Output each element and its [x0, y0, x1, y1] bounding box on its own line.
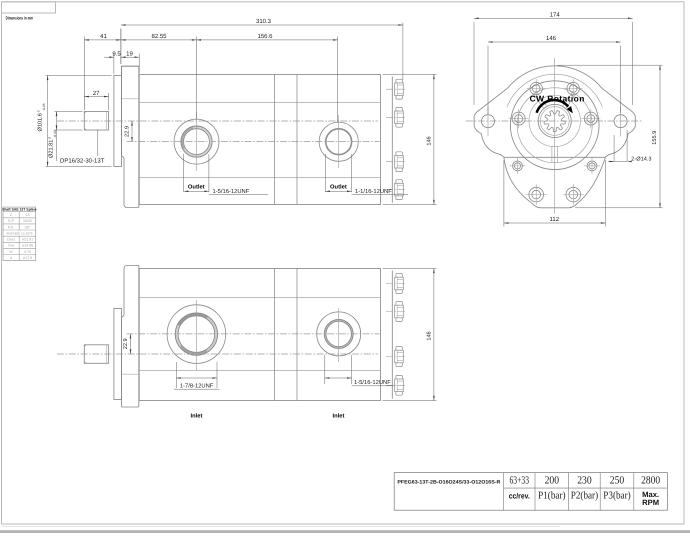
svg-text:1-5/16-12UNF: 1-5/16-12UNF [213, 188, 250, 195]
svg-text:41: 41 [100, 33, 107, 40]
svg-text:310.3: 310.3 [256, 18, 272, 25]
svg-text:9.5: 9.5 [112, 50, 121, 57]
svg-text:CW Rotation: CW Rotation [530, 93, 585, 103]
svg-text:1-5/16-12UNF: 1-5/16-12UNF [354, 379, 391, 386]
svg-text:146: 146 [427, 331, 433, 340]
svg-text:82.55: 82.55 [151, 33, 167, 40]
svg-text:174: 174 [550, 11, 561, 18]
svg-text:Ø21.81 0: Ø21.81 0 [48, 137, 55, 158]
svg-text:22.9: 22.9 [123, 338, 129, 349]
svg-text:Outlet: Outlet [188, 184, 205, 191]
svg-text:2800: 2800 [641, 475, 660, 487]
svg-text:Dia: Dia [8, 244, 13, 248]
svg-text:Dext: Dext [7, 238, 14, 242]
svg-text:-0.13: -0.13 [53, 130, 57, 137]
svg-text:ø21.91: ø21.91 [22, 238, 33, 242]
svg-text:112: 112 [550, 216, 560, 223]
svg-text:155.9: 155.9 [652, 131, 658, 145]
svg-text:27: 27 [93, 90, 100, 97]
svg-text:230: 230 [577, 475, 592, 487]
svg-text:200: 200 [545, 475, 560, 487]
svg-text:-0.05: -0.05 [42, 103, 46, 110]
svg-text:Shaft SAE 13T Spline: Shaft SAE 13T Spline [2, 208, 36, 212]
svg-text:W: W [9, 250, 13, 254]
svg-text:P2(bar): P2(bar) [571, 491, 599, 502]
svg-text:ø19.45: ø19.45 [22, 244, 33, 248]
svg-text:1-7/8-12UNF: 1-7/8-12UNF [180, 382, 214, 389]
svg-text:63+33: 63+33 [510, 475, 530, 487]
svg-text:ø17.9: ø17.9 [23, 256, 32, 260]
svg-text:Ø101.6 0: Ø101.6 0 [37, 110, 44, 131]
svg-text:146: 146 [427, 136, 433, 145]
svg-text:P.A.: P.A. [8, 225, 14, 229]
svg-text:4.76: 4.76 [24, 250, 31, 254]
svg-text:P1(bar): P1(bar) [538, 491, 566, 502]
svg-text:250: 250 [610, 475, 625, 487]
svg-text:ANSI B92.1a 1976: ANSI B92.1a 1976 [6, 231, 33, 235]
svg-text:22.9: 22.9 [124, 126, 130, 137]
svg-text:2-Ø14.3: 2-Ø14.3 [631, 157, 651, 163]
svg-text:D.P: D.P [8, 219, 15, 223]
svg-text:146: 146 [546, 35, 557, 42]
svg-text:30°: 30° [25, 225, 31, 229]
svg-text:13: 13 [26, 213, 30, 217]
svg-text:156.6: 156.6 [257, 33, 273, 40]
svg-text:1-1/16-12UNF: 1-1/16-12UNF [355, 188, 392, 195]
svg-text:19: 19 [126, 50, 133, 57]
svg-text:Outlet: Outlet [330, 184, 347, 191]
svg-text:Inlet: Inlet [191, 412, 203, 419]
svg-text:cc/rev.: cc/rev. [509, 491, 530, 500]
svg-text:DP16/32-30-13T: DP16/32-30-13T [60, 157, 105, 164]
svg-text:P3(bar): P3(bar) [603, 491, 631, 502]
svg-text:Dimensions in mm: Dimensions in mm [6, 16, 34, 21]
svg-text:16/32: 16/32 [23, 219, 32, 223]
svg-text:d: d [10, 256, 12, 260]
svg-text:Inlet: Inlet [333, 412, 345, 419]
svg-text:PFEG63-13T-2B-O16O24S/33-O12O1: PFEG63-13T-2B-O16O24S/33-O12O16S-R [397, 479, 501, 485]
svg-text:RPM: RPM [642, 498, 659, 507]
